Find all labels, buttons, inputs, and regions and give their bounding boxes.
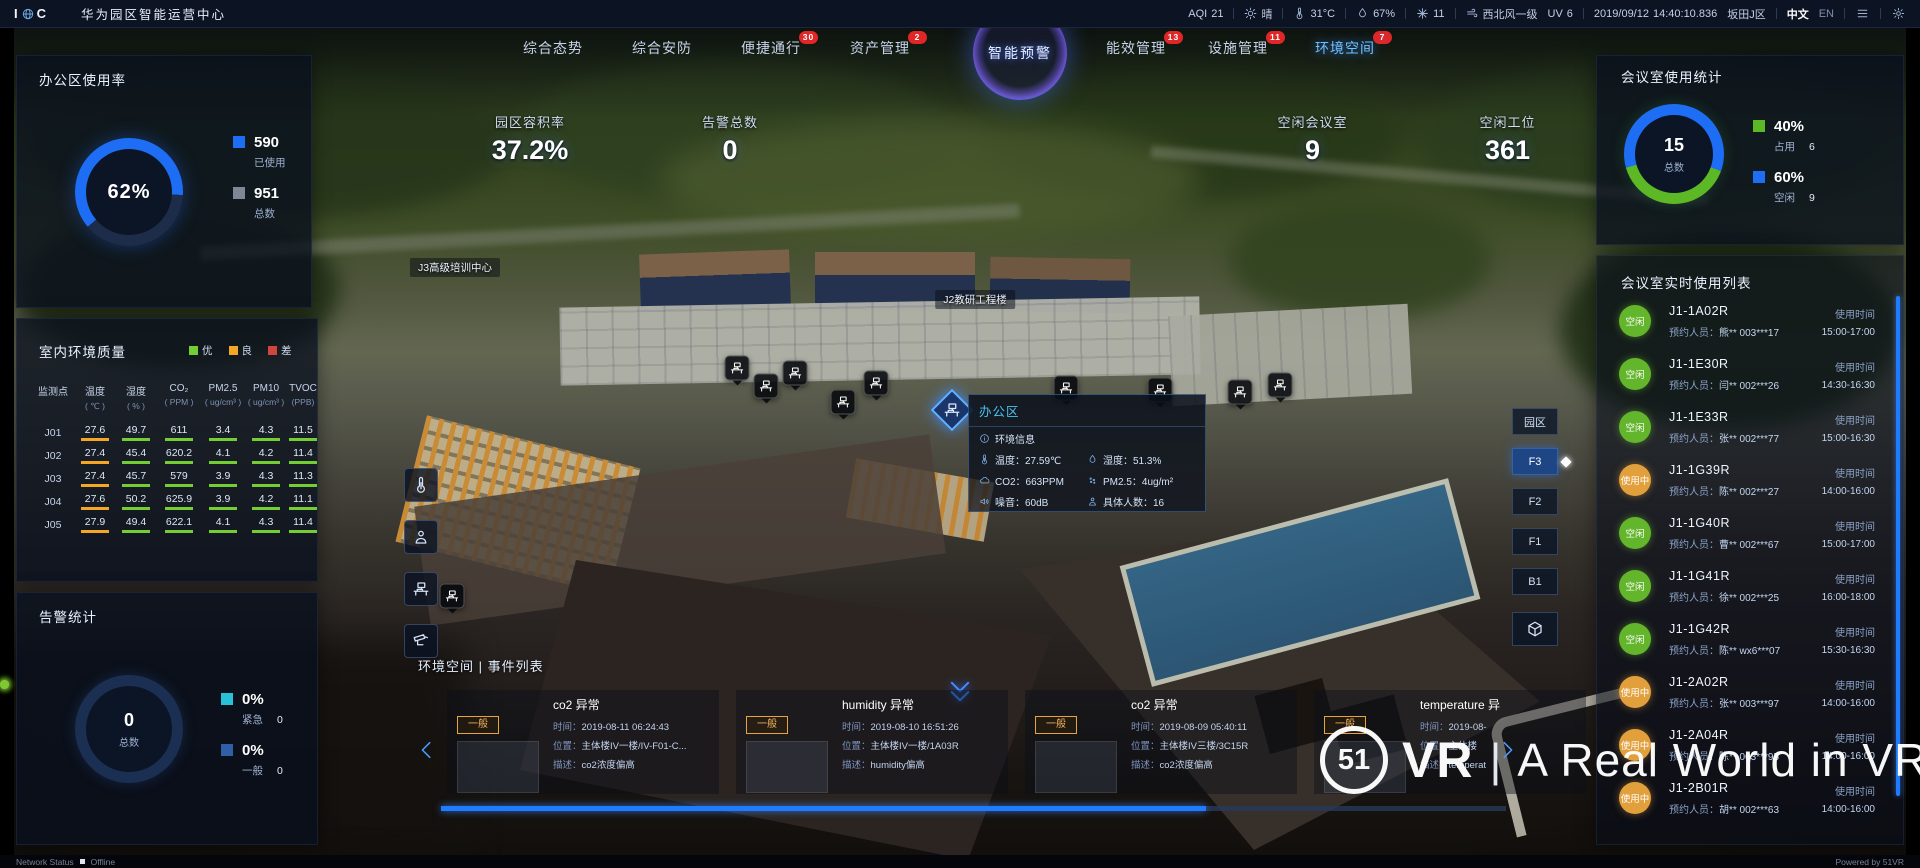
room-status-badge: 空闲 (1619, 623, 1651, 655)
room-status-badge: 使用中 (1619, 464, 1651, 496)
gear-icon[interactable] (1891, 7, 1906, 20)
tooltip-cell: PM2.5：4ug/m² (1087, 473, 1195, 488)
event-time-value: 2019-08-09 05:40:11 (1160, 722, 1248, 733)
legend-swatch (233, 187, 245, 199)
measurement-value: 625.9 (165, 493, 193, 510)
meeting-usage-panel: 会议室使用统计 15 总数 40%占用660%空闲9 (1596, 55, 1904, 245)
tooltip-text: 具体人数：16 (1103, 494, 1164, 509)
powered-by: Powered by 51VR (1835, 857, 1904, 867)
room-status-badge: 空闲 (1619, 517, 1651, 549)
tooltip-text: 环境信息 (995, 431, 1035, 446)
room-schedule: 使用时间14:00-16:00 (1822, 465, 1875, 497)
column-header: TVOC(PPB) (287, 383, 319, 412)
quality-legend-swatch (229, 346, 238, 355)
wind-indicator: 西北风一级 (1466, 6, 1538, 22)
workstation-tool-button[interactable] (404, 572, 438, 606)
building-label: J2教研工程楼 (935, 290, 1015, 309)
room-person-label: 预约人员： (1669, 328, 1719, 339)
panel-title: 会议室实时使用列表 (1621, 272, 1752, 292)
datetime: 2019/09/12 14:40:10.836 (1594, 8, 1717, 20)
legend-label: 总数 (254, 206, 279, 221)
measurement-value: 4.3 (252, 424, 280, 441)
tooltip-text: 湿度：51.3% (1103, 452, 1161, 467)
room-person-label: 预约人员： (1669, 434, 1719, 445)
status-footer: Network Status Offline Powered by 51VR (0, 855, 1920, 868)
event-card-text: humidity 异常时间：2019-08-10 16:51:26位置：主体楼I… (842, 696, 998, 771)
divider (1844, 8, 1845, 19)
room-code: J1-1E30R (1669, 357, 1779, 371)
floor-label: F1 (1529, 536, 1542, 548)
room-person-value: 胡** 002***63 (1719, 805, 1779, 816)
env-table-body: J0127.649.76113.44.311.5J0227.445.4620.2… (31, 421, 319, 536)
office-usage-percent: 62% (107, 181, 150, 204)
divider (1405, 8, 1406, 19)
tooltip-cell: 具体人数：16 (1087, 494, 1195, 509)
room-time-label: 使用时间 (1822, 571, 1875, 586)
legend-value: 40% (1774, 118, 1815, 135)
column-unit: ( ug/cm³ ) (201, 397, 245, 407)
event-desc: 描述：co2浓度偏高 (553, 757, 709, 771)
event-title: humidity 异常 (842, 696, 998, 713)
legend-value: 590 (254, 134, 286, 151)
tooltip-row: 噪音：60dB具体人数：16 (969, 490, 1205, 511)
measurement-value: 4.1 (209, 516, 237, 533)
status-cluster: AQI 21 晴 31°C 67% 11 西北风一级 (1188, 6, 1906, 22)
humidity-indicator: 67% (1356, 7, 1395, 20)
room-code: J1-1A02R (1669, 304, 1779, 318)
room-person-value: 陈** wx6***07 (1719, 646, 1780, 657)
legend-count: 9 (1809, 192, 1815, 204)
meeting-room-row[interactable]: 空闲J1-1G41R预约人员：徐** 002***25使用时间16:00-18:… (1609, 563, 1893, 616)
measurement-value: 11.5 (289, 424, 317, 441)
room-time-label: 使用时间 (1822, 306, 1875, 321)
nav-tab-label: 综合态势 (523, 40, 583, 56)
floor-label: F2 (1529, 496, 1542, 508)
divider (1455, 8, 1456, 19)
table-row[interactable]: J0427.650.2625.93.94.211.1 (31, 490, 319, 513)
measurement-value: 4.2 (252, 493, 280, 510)
column-header: PM2.5( ug/cm³ ) (201, 383, 245, 412)
event-desc-label: 描述： (553, 760, 582, 771)
event-desc-value: co2浓度偏高 (582, 760, 635, 771)
room-time-label: 使用时间 (1822, 624, 1875, 639)
workstation-marker[interactable] (1268, 373, 1293, 398)
measurement-value: 4.1 (209, 447, 237, 464)
nav-tab[interactable]: 环境空间7 (1315, 38, 1375, 58)
quality-legend-label: 差 (281, 343, 292, 358)
measurement-value: 622.1 (165, 516, 193, 533)
uv-value: 6 (1567, 8, 1573, 20)
room-status-badge: 空闲 (1619, 305, 1651, 337)
event-time-value: 2019-08-10 16:51:26 (871, 722, 959, 733)
floor-label: B1 (1528, 576, 1541, 588)
measurement-value: 11.3 (289, 470, 317, 487)
app-root: J3高级培训中心J2教研工程楼 办公区 环境信息温度：27.59℃湿度：51.3… (0, 0, 1920, 868)
room-time-value: 16:00-18:00 (1822, 592, 1875, 603)
room-person: 预约人员：曹** 002***67 (1669, 536, 1779, 551)
room-person-value: 张** 003***97 (1719, 699, 1779, 710)
room-person: 预约人员：胡** 002***63 (1669, 801, 1779, 816)
scrollbar[interactable] (1896, 296, 1900, 796)
temperature-indicator: 31°C (1293, 7, 1335, 20)
tooltip-cell: 湿度：51.3% (1087, 452, 1195, 467)
room-time-label: 使用时间 (1822, 677, 1875, 692)
meeting-room-row[interactable]: 空闲J1-1A02R预约人员：熊** 003***17使用时间15:00-17:… (1609, 298, 1893, 351)
event-desc: 描述：co2浓度偏高 (1131, 757, 1287, 771)
measurement-value: 45.7 (122, 470, 150, 487)
nav-tab[interactable]: 综合态势 (523, 38, 583, 58)
floor-item-F1[interactable]: F1 (1512, 528, 1558, 555)
alarm-stats-donut: 0 总数 (75, 675, 183, 783)
event-level-badge: 一般 (457, 716, 499, 734)
divider (1282, 8, 1283, 19)
event-progress-track[interactable] (441, 806, 1506, 811)
event-loc-label: 位置： (553, 741, 582, 752)
legend-item: 40%占用6 (1753, 118, 1815, 154)
workstation-marker[interactable] (754, 374, 779, 399)
nav-tab[interactable]: 资产管理2 (850, 38, 910, 58)
room-schedule: 使用时间14:00-16:00 (1822, 677, 1875, 709)
workstation-marker[interactable] (725, 356, 750, 381)
room-person: 预约人员：张** 003***97 (1669, 695, 1779, 710)
measurement-value: 4.3 (252, 516, 280, 533)
event-card[interactable]: 一般co2 异常时间：2019-08-11 06:24:43位置：主体楼IV一楼… (447, 690, 719, 794)
meeting-person-tool-button[interactable] (404, 520, 438, 554)
room-schedule: 使用时间15:00-17:00 (1822, 306, 1875, 338)
event-card-left: 一般 (1035, 714, 1115, 793)
room-person-value: 张** 002***77 (1719, 434, 1779, 445)
panel-title: 室内环境质量 (39, 341, 126, 361)
kpi-label: 空闲工位 (1410, 112, 1605, 131)
smart-alert-label: 智能预警 (988, 43, 1052, 63)
uv-label: UV (1548, 8, 1563, 20)
table-row[interactable]: J0127.649.76113.44.311.5 (31, 421, 319, 444)
event-loc-value: 主体楼IV一楼/IV-F01-C... (582, 741, 687, 752)
watermark-tagline: A Real World in VR (1517, 733, 1920, 787)
event-loc-value: 主体楼IV三楼/3C15R (1160, 741, 1249, 752)
legend-item: 0%一般0 (221, 742, 283, 778)
room-time-value: 15:00-17:00 (1822, 327, 1875, 338)
room-time-label: 使用时间 (1822, 359, 1875, 374)
app-title: 华为园区智能运营中心 (81, 4, 226, 23)
room-schedule: 使用时间16:00-18:00 (1822, 571, 1875, 603)
workstation-icon (943, 401, 961, 419)
room-person-label: 预约人员： (1669, 805, 1719, 816)
nav-tab[interactable]: 综合安防 (632, 38, 692, 58)
room-code: J1-1E33R (1669, 410, 1779, 424)
floor-label: 园区 (1524, 414, 1546, 430)
room-person-label: 预约人员： (1669, 699, 1719, 710)
nav-tab-label: 设施管理 (1208, 40, 1268, 56)
office-usage-legend: 590已使用951总数 (233, 134, 286, 236)
meeting-room-row[interactable]: 空闲J1-1G40R预约人员：曹** 002***67使用时间15:00-17:… (1609, 510, 1893, 563)
legend-item: 590已使用 (233, 134, 286, 170)
meeting-room-row[interactable]: 空闲J1-1E33R预约人员：张** 002***77使用时间15:00-16:… (1609, 404, 1893, 457)
room-person-value: 闫** 002***26 (1719, 381, 1779, 392)
alarm-stats-panel: 告警统计 0 总数 0%紧急00%一般0 (16, 592, 318, 845)
top-bar: I C 华为园区智能运营中心 AQI 21 晴 31°C 67% (0, 0, 1920, 28)
column-unit: ( ug/cm³ ) (245, 397, 287, 407)
kpi-label: 园区容积率 (430, 112, 630, 131)
network-status-value: Offline (91, 857, 115, 867)
meeting-total-label: 总数 (1664, 159, 1684, 174)
room-person-label: 预约人员： (1669, 593, 1719, 604)
room-code: J1-1G41R (1669, 569, 1779, 583)
room-person: 预约人员：陈** 002***27 (1669, 483, 1779, 498)
tooltip-cell: 噪音：60dB (979, 494, 1087, 509)
meeting-room-row[interactable]: 使用中J1-2A02R预约人员：张** 003***97使用时间14:00-16… (1609, 669, 1893, 722)
nav-tab-label: 能效管理 (1106, 40, 1166, 56)
room-person-value: 陈** 002***27 (1719, 487, 1779, 498)
meeting-usage-donut: 15 总数 (1624, 104, 1724, 204)
room-time-value: 15:00-16:30 (1822, 433, 1875, 444)
legend-count: 6 (1809, 141, 1815, 153)
event-desc-value: humidity偏高 (871, 760, 925, 771)
district-selector[interactable]: 坂田J区 (1727, 6, 1766, 22)
legend-text: 590已使用 (254, 134, 286, 170)
pm-icon (1416, 7, 1429, 20)
floor-item-F2[interactable]: F2 (1512, 488, 1558, 515)
event-card-text: co2 异常时间：2019-08-11 06:24:43位置：主体楼IV一楼/I… (553, 696, 709, 771)
panel-title: 告警统计 (39, 606, 97, 626)
column-name: PM10 (245, 383, 287, 394)
chevron-left-icon[interactable] (416, 733, 438, 767)
humidity-icon (1356, 7, 1369, 20)
meeting-person-icon (1087, 496, 1098, 507)
tooltip-text: 噪音：60dB (995, 494, 1048, 509)
aqi-indicator: AQI 21 (1188, 8, 1223, 20)
column-name: 湿度 (115, 383, 157, 398)
workstation-marker[interactable] (440, 584, 465, 609)
room-status-badge: 空闲 (1619, 358, 1651, 390)
event-desc: 描述：humidity偏高 (842, 757, 998, 771)
pm-icon (1087, 475, 1098, 486)
event-loc: 位置：主体楼IV一楼/1A03R (842, 738, 998, 752)
room-person-value: 曹** 002***67 (1719, 540, 1779, 551)
legend-value: 60% (1774, 169, 1815, 186)
pm-indicator: 11 (1416, 7, 1444, 20)
event-title: temperature 异 (1420, 696, 1576, 713)
event-time-label: 时间： (842, 722, 871, 733)
divider (1583, 8, 1584, 19)
measurement-value: 611 (165, 424, 193, 441)
measurement-value: 27.9 (81, 516, 109, 533)
legend-text: 0%一般0 (242, 742, 283, 778)
event-thumbnail (457, 741, 539, 793)
alarm-total: 0 (124, 710, 134, 731)
quality-legend-item: 良 (229, 343, 253, 358)
meeting-room-row[interactable]: 空闲J1-1G42R预约人员：陈** wx6***07使用时间15:30-16:… (1609, 616, 1893, 669)
event-time: 时间：2019-08-09 05:40:11 (1131, 719, 1287, 733)
column-unit: ( ℃ ) (75, 401, 115, 412)
event-desc-value: co2浓度偏高 (1160, 760, 1213, 771)
column-name: PM2.5 (201, 383, 245, 394)
alarm-total-label: 总数 (119, 734, 139, 749)
measurement-value: 45.4 (122, 447, 150, 464)
nav-tab-label: 便捷通行 (741, 40, 801, 56)
drop-icon (1087, 454, 1098, 465)
column-header: 监测点 (31, 383, 75, 412)
env-table-header: 监测点温度( ℃ )湿度( % )CO₂( PPM )PM2.5( ug/cm³… (31, 383, 319, 412)
thermometer-tool-button[interactable] (404, 468, 438, 502)
thermometer-icon (1293, 7, 1306, 20)
floor-item-F3[interactable]: F3 (1512, 448, 1558, 475)
menu-list-icon[interactable] (1855, 7, 1870, 20)
room-person: 预约人员：熊** 003***17 (1669, 324, 1779, 339)
room-info: J1-1G40R预约人员：曹** 002***67 (1669, 516, 1779, 551)
legend-label: 一般0 (242, 763, 283, 778)
room-info: J1-1G42R预约人员：陈** wx6***07 (1669, 622, 1780, 657)
measurement-value: 27.6 (81, 493, 109, 510)
table-row[interactable]: J0227.445.4620.24.14.211.4 (31, 444, 319, 467)
nav-tab[interactable]: 设施管理11 (1208, 38, 1268, 58)
measurement-value: 50.2 (122, 493, 150, 510)
room-person-value: 徐** 002***25 (1719, 593, 1779, 604)
floor-label: F3 (1529, 456, 1542, 468)
event-card[interactable]: 一般humidity 异常时间：2019-08-10 16:51:26位置：主体… (736, 690, 1008, 794)
51vr-logo: 51 (1320, 726, 1388, 794)
nav-tab[interactable]: 便捷通行30 (741, 38, 801, 58)
room-info: J1-1G39R预约人员：陈** 002***27 (1669, 463, 1779, 498)
monitor-point-id: J03 (31, 473, 75, 485)
room-code: J1-1G39R (1669, 463, 1779, 477)
room-info: J1-1E33R预约人员：张** 002***77 (1669, 410, 1779, 445)
column-header: CO₂( PPM ) (157, 383, 201, 412)
event-card[interactable]: 一般co2 异常时间：2019-08-09 05:40:11位置：主体楼IV三楼… (1025, 690, 1297, 794)
tooltip-cell: 温度：27.59℃ (979, 452, 1087, 467)
measurement-value: 27.6 (81, 424, 109, 441)
vr-watermark: 51 VR | A Real World in VR (1320, 726, 1920, 794)
event-time-value: 2019-08-11 06:24:43 (582, 722, 670, 733)
lang-zh-button[interactable]: 中文 (1787, 6, 1809, 22)
event-time-label: 时间： (1131, 722, 1160, 733)
workstation-marker[interactable] (864, 371, 889, 396)
tooltip-title: 办公区 (969, 395, 1205, 427)
legend-label-text: 占用 (1774, 141, 1795, 153)
nav-tab-badge: 13 (1164, 31, 1183, 44)
room-person: 预约人员：陈** wx6***07 (1669, 642, 1780, 657)
legend-item: 0%紧急0 (221, 691, 283, 727)
legend-swatch (1753, 120, 1765, 132)
meeting-room-row[interactable]: 空闲J1-1E30R预约人员：闫** 002***26使用时间14:30-16:… (1609, 351, 1893, 404)
event-card-left: 一般 (457, 714, 537, 793)
weather-indicator: 晴 (1244, 6, 1272, 22)
room-person-label: 预约人员： (1669, 646, 1719, 657)
ioc-logo: I C (14, 6, 47, 21)
aqi-value: 21 (1211, 8, 1223, 20)
tooltip-text: 温度：27.59℃ (995, 452, 1061, 467)
logo-letter: I (14, 6, 19, 21)
column-unit: ( PPM ) (157, 397, 201, 407)
nav-tab-label: 综合安防 (632, 40, 692, 56)
legend-text: 60%空闲9 (1774, 169, 1815, 205)
measurement-value: 49.4 (122, 516, 150, 533)
cube-3d-icon[interactable] (1512, 612, 1558, 646)
measurement-value: 11.4 (289, 447, 317, 464)
indoor-env-quality-panel: 室内环境质量 优良差 监测点温度( ℃ )湿度( % )CO₂( PPM )PM… (16, 318, 318, 582)
measurement-value: 3.9 (209, 493, 237, 510)
temperature-value: 31°C (1310, 8, 1335, 20)
legend-text: 40%占用6 (1774, 118, 1815, 154)
floor-item-B1[interactable]: B1 (1512, 568, 1558, 595)
legend-label: 空闲9 (1774, 190, 1815, 205)
measurement-value: 4.3 (252, 470, 280, 487)
table-row[interactable]: J0327.445.75793.94.311.3 (31, 467, 319, 490)
workstation-marker[interactable] (783, 361, 808, 386)
weather-text: 晴 (1261, 6, 1272, 22)
room-person-value: 熊** 003***17 (1719, 328, 1779, 339)
kpi-item: 园区容积率37.2% (430, 112, 630, 166)
alarm-stats-legend: 0%紧急00%一般0 (221, 691, 283, 793)
room-person-label: 预约人员： (1669, 540, 1719, 551)
event-loc-value: 主体楼IV一楼/1A03R (871, 741, 959, 752)
room-code: J1-2A02R (1669, 675, 1779, 689)
room-info: J1-1E30R预约人员：闫** 002***26 (1669, 357, 1779, 392)
lang-en-button[interactable]: EN (1819, 8, 1834, 20)
quality-legend-item: 差 (268, 343, 292, 358)
monitor-point-id: J02 (31, 450, 75, 462)
room-time-value: 14:00-16:00 (1822, 698, 1875, 709)
nav-tab[interactable]: 能效管理13 (1106, 38, 1166, 58)
uv-indicator: UV 6 (1548, 8, 1573, 20)
table-row[interactable]: J0527.949.4622.14.14.311.4 (31, 513, 319, 536)
wind-icon (1466, 7, 1479, 20)
humidity-value: 67% (1373, 8, 1395, 20)
measurement-value: 49.7 (122, 424, 150, 441)
meeting-total: 15 (1664, 135, 1684, 156)
nav-tab-badge: 7 (1373, 31, 1392, 44)
meeting-room-row[interactable]: 使用中J1-1G39R预约人员：陈** 002***27使用时间14:00-16… (1609, 457, 1893, 510)
room-time-value: 14:30-16:30 (1822, 380, 1875, 391)
column-name: 监测点 (31, 383, 75, 398)
legend-text: 951总数 (254, 185, 279, 221)
quality-legend-swatch (268, 346, 277, 355)
tooltip-text: PM2.5：4ug/m² (1103, 473, 1173, 488)
workstation-marker[interactable] (1228, 380, 1253, 405)
building-label: J3高级培训中心 (410, 258, 500, 277)
legend-label-text: 空闲 (1774, 192, 1795, 204)
noise-icon (979, 496, 990, 507)
column-header: 温度( ℃ ) (75, 383, 115, 412)
event-loc: 位置：主体楼IV三楼/3C15R (1131, 738, 1287, 752)
event-title: co2 异常 (553, 696, 709, 713)
kpi-label: 空闲会议室 (1215, 112, 1410, 131)
watermark-divider: | (1489, 733, 1501, 787)
divider (1345, 8, 1346, 19)
legend-count: 0 (277, 765, 283, 777)
quality-legend-swatch (189, 346, 198, 355)
legend-value: 0% (242, 691, 283, 708)
event-desc-label: 描述： (1131, 760, 1160, 771)
room-schedule: 使用时间15:00-16:30 (1822, 412, 1875, 444)
legend-label: 已使用 (254, 155, 286, 170)
event-time-label: 时间： (553, 722, 582, 733)
panel-title: 会议室使用统计 (1621, 66, 1723, 86)
workstation-marker[interactable] (831, 390, 856, 415)
nav-tab-label: 环境空间 (1315, 40, 1375, 56)
room-schedule: 使用时间15:00-17:00 (1822, 518, 1875, 550)
floor-item-园区[interactable]: 园区 (1512, 408, 1558, 435)
time-value: 14:40:10.836 (1653, 8, 1717, 20)
nav-tab-badge: 2 (908, 31, 927, 44)
room-time-label: 使用时间 (1822, 518, 1875, 533)
camera-tool-button[interactable] (404, 624, 438, 658)
measurement-value: 27.4 (81, 470, 109, 487)
event-loc: 位置：主体楼IV一楼/IV-F01-C... (553, 738, 709, 752)
legend-swatch (233, 136, 245, 148)
event-level-badge: 一般 (746, 716, 788, 734)
legend-swatch (221, 693, 233, 705)
